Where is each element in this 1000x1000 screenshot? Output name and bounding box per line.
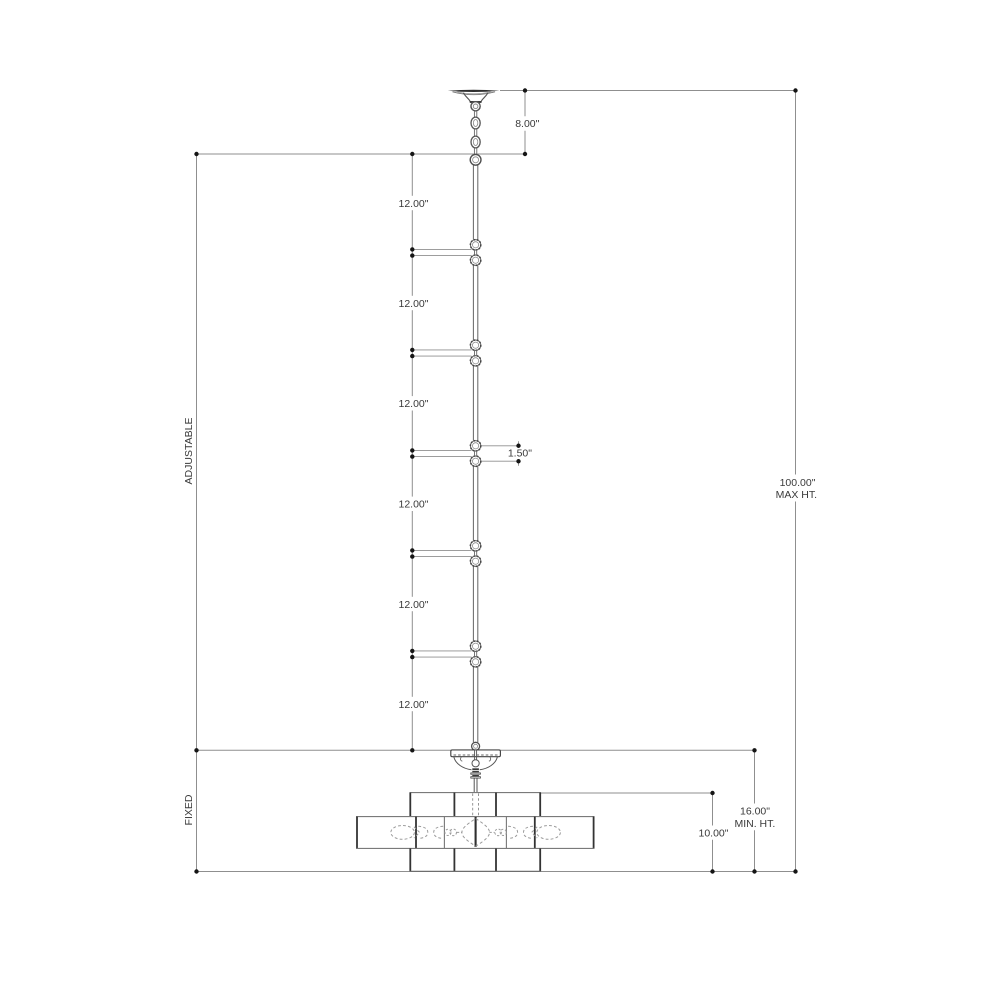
svg-text:100.00": 100.00" xyxy=(780,477,816,489)
svg-text:16.00": 16.00" xyxy=(740,806,770,818)
svg-text:12.00": 12.00" xyxy=(398,699,428,711)
svg-text:12.00": 12.00" xyxy=(398,198,428,210)
svg-text:1.50": 1.50" xyxy=(508,448,532,460)
svg-text:ADJUSTABLE: ADJUSTABLE xyxy=(183,418,195,485)
svg-text:MIN. HT.: MIN. HT. xyxy=(734,818,775,830)
svg-text:12.00": 12.00" xyxy=(398,298,428,310)
svg-text:12.00": 12.00" xyxy=(398,499,428,511)
svg-text:8.00": 8.00" xyxy=(515,118,539,130)
svg-text:12.00": 12.00" xyxy=(398,398,428,410)
svg-text:10.00": 10.00" xyxy=(698,827,728,839)
svg-text:FIXED: FIXED xyxy=(183,794,195,825)
svg-text:12.00": 12.00" xyxy=(398,599,428,611)
svg-text:MAX HT.: MAX HT. xyxy=(776,489,817,501)
